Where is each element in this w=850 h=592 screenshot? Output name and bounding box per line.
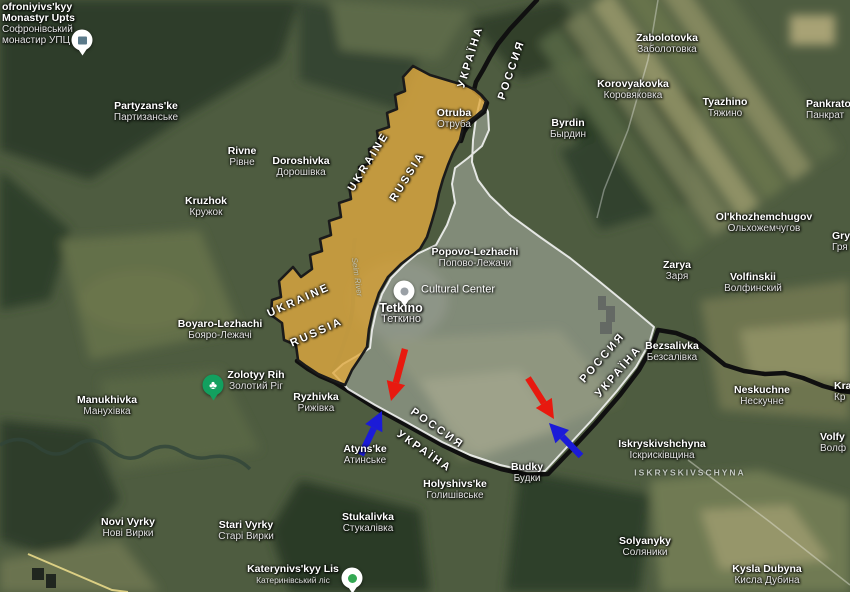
monastery-marker[interactable] (72, 30, 93, 51)
label-katerynivskyy-lis[interactable]: Katerynivs'kyy LisКатеринівський ліс (247, 564, 339, 586)
label-zolotyy-rih-text: Золотий Ріг (227, 381, 284, 392)
label-pankratovka-text: Панкрат (806, 110, 850, 121)
border-label-rossiya-top-text: РОССИЯ (497, 39, 528, 102)
label-ryzhivka[interactable]: RyzhivkaРижівка (293, 392, 339, 414)
label-atynske[interactable]: Atyns'keАтинське (343, 444, 386, 466)
label-manukhivka[interactable]: ManukhivkaМанухівка (77, 395, 137, 417)
label-kysla-dubyna[interactable]: Kysla DubynaКисла Дубина (732, 564, 801, 586)
label-sofroniyivskyy-monastyr-text: ofroniyivs'kyy (2, 2, 75, 13)
border-label-russia-upper: RUSSIA (388, 150, 427, 204)
label-solyanyky[interactable]: SolyanykyСоляники (619, 536, 671, 558)
label-cultural-center[interactable]: Cultural Center (421, 285, 495, 296)
label-otruba-text: Отруба (437, 119, 471, 130)
label-zolotyy-rih[interactable]: Zolotyy RihЗолотий Ріг (227, 370, 284, 392)
label-neskuchne-text: Нескучне (734, 396, 790, 407)
border-label-russia-upper-text: RUSSIA (388, 150, 427, 204)
label-rivne-text: Рівне (228, 157, 257, 168)
label-zarya-text: Zarya (663, 260, 691, 271)
label-gryaznoe-text: Гря (832, 242, 850, 253)
label-stukalivka-text: Стукалівка (342, 523, 394, 534)
label-olkhozhemchugov[interactable]: Ol'khozhemchugovОльхожемчугов (716, 212, 812, 234)
label-doroshivka[interactable]: DoroshivkaДорошівка (272, 156, 329, 178)
label-seim-river: Seim River (349, 257, 365, 297)
label-atynske-text: Atyns'ke (343, 444, 386, 455)
label-stari-vyrky-text: Старі Вирки (218, 531, 274, 542)
zolotyy-rih-marker[interactable]: ♣ (203, 375, 224, 396)
border-label-rossiya-right: РОССИЯ (578, 331, 627, 385)
border-label-russia-lower-text: RUSSIA (289, 316, 345, 349)
label-kysla-dubyna-text: Кисла Дубина (732, 575, 801, 586)
label-atynske-text: Атинське (343, 455, 386, 466)
label-katerynivskyy-lis-text: Катеринівський ліс (247, 575, 339, 586)
label-sofroniyivskyy-monastyr-text: Софронівський (2, 24, 75, 35)
border-label-rossiya-right-text: РОССИЯ (578, 331, 627, 385)
label-gryaznoe-text: Gry (832, 231, 850, 242)
border-label-ukraine-upper-text: UKRAINE (346, 130, 391, 193)
label-stari-vyrky-text: Stari Vyrky (218, 520, 274, 531)
label-krasn[interactable]: KraКр (834, 381, 850, 403)
label-sofroniyivskyy-monastyr-text: монастир УПЦ (2, 35, 75, 46)
label-tetkino-text: Теткино (379, 314, 423, 325)
label-byrdin-text: Byrdin (550, 118, 586, 129)
label-iskryskivschyna-area: ISKRYSKIVSCHYNA (634, 468, 745, 479)
label-novi-vyrky[interactable]: Novi VyrkyНові Вирки (101, 517, 155, 539)
katerynivskyy-lis-marker[interactable] (342, 568, 363, 589)
label-rivne-text: Rivne (228, 146, 257, 157)
label-manukhivka-text: Manukhivka (77, 395, 137, 406)
label-olkhozhemchugov-text: Ol'khozhemchugov (716, 212, 812, 223)
label-holyshivske-text: Holyshivs'ke (423, 479, 487, 490)
label-zarya[interactable]: ZaryaЗаря (663, 260, 691, 282)
label-tyazhino-text: Tyazhino (703, 97, 748, 108)
label-bezsalivka[interactable]: BezsalivkaБезсалівка (645, 341, 699, 363)
label-pankratovka[interactable]: PankratoПанкрат (806, 99, 850, 121)
label-ryzhivka-text: Рижівка (293, 403, 339, 414)
border-label-ukraine-upper: UKRAINE (346, 130, 391, 193)
label-gryaznoe[interactable]: GryГря (832, 231, 850, 253)
border-label-rossiya-mid-text: РОССИЯ (408, 407, 465, 452)
label-boyaro-lezhachi-text: Бояро-Лежачі (178, 330, 263, 341)
border-label-ukraine-lower-text: UKRAINE (266, 282, 332, 320)
label-budky-text: Budky (511, 462, 543, 473)
label-otruba-text: Otruba (437, 108, 471, 119)
label-partyzanske-text: Партизанське (114, 112, 178, 123)
border-label-rossiya-mid: РОССИЯ (408, 407, 465, 452)
label-kruzhok-text: Кружок (185, 207, 227, 218)
label-zabolotovka-text: Заболотовка (636, 44, 698, 55)
label-kruzhok[interactable]: KruzhokКружок (185, 196, 227, 218)
label-pankratovka-text: Pankrato (806, 99, 850, 110)
satellite-map[interactable]: ofroniyivs'kyyMonastyr UptsСофронівський… (0, 0, 850, 592)
label-partyzanske-text: Partyzans'ke (114, 101, 178, 112)
label-cultural-center-text: Cultural Center (421, 285, 495, 296)
label-sofroniyivskyy-monastyr[interactable]: ofroniyivs'kyyMonastyr UptsСофронівський… (2, 2, 75, 46)
label-zabolotovka-text: Zabolotovka (636, 33, 698, 44)
label-iskryskivshchyna-text: Iskryskivshchyna (618, 439, 706, 450)
border-label-ukraina-top-text: УКРАЇНА (456, 25, 485, 90)
label-budky[interactable]: BudkyБудки (511, 462, 543, 484)
label-doroshivka-text: Дорошівка (272, 167, 329, 178)
label-novi-vyrky-text: Нові Вирки (101, 528, 155, 539)
label-popovo-lezhachi-text: Попово-Лежачи (432, 258, 519, 269)
label-tyazhino[interactable]: TyazhinoТяжино (703, 97, 748, 119)
label-stukalivka-text: Stukalivka (342, 512, 394, 523)
label-solyanyky-text: Solyanyky (619, 536, 671, 547)
label-tyazhino-text: Тяжино (703, 108, 748, 119)
label-zabolotovka[interactable]: ZabolotovkaЗаболотовка (636, 33, 698, 55)
border-label-ukraina-right-text: УКРАЇНА (594, 344, 644, 400)
border-label-ukraina-mid-text: УКРАЇНА (395, 429, 454, 475)
label-volfyne-text: Volfy (820, 432, 846, 443)
label-doroshivka-text: Doroshivka (272, 156, 329, 167)
label-korovyakovka-text: Korovyakovka (597, 79, 669, 90)
label-byrdin[interactable]: ByrdinБырдин (550, 118, 586, 140)
tree-dot-icon (348, 574, 357, 583)
label-katerynivskyy-lis-text: Katerynivs'kyy Lis (247, 564, 339, 575)
border-label-russia-lower: RUSSIA (289, 316, 345, 349)
border-label-ukraine-lower: UKRAINE (266, 282, 332, 320)
label-seim-river-text: Seim River (349, 257, 365, 297)
label-sofroniyivskyy-monastyr-text: Monastyr Upts (2, 13, 75, 24)
label-zarya-text: Заря (663, 271, 691, 282)
border-label-ukraina-top: УКРАЇНА (456, 25, 485, 90)
cultural-center-marker[interactable] (394, 281, 415, 302)
monastery-building-icon (78, 36, 87, 44)
label-iskryskivschyna-area-text: ISKRYSKIVSCHYNA (634, 468, 745, 479)
tree-icon: ♣ (209, 379, 217, 391)
label-holyshivske[interactable]: Holyshivs'keГолишівське (423, 479, 487, 501)
label-volfyne[interactable]: VolfyВолф (820, 432, 846, 454)
label-neskuchne-text: Neskuchne (734, 385, 790, 396)
label-olkhozhemchugov-text: Ольхожемчугов (716, 223, 812, 234)
label-boyaro-lezhachi[interactable]: Boyaro-LezhachiБояро-Лежачі (178, 319, 263, 341)
label-stukalivka[interactable]: StukalivkaСтукалівка (342, 512, 394, 534)
label-korovyakovka[interactable]: KorovyakovkaКоровяковка (597, 79, 669, 101)
label-bezsalivka-text: Bezsalivka (645, 341, 699, 352)
label-krasn-text: Kra (834, 381, 850, 392)
label-holyshivske-text: Голишівське (423, 490, 487, 501)
label-partyzanske[interactable]: Partyzans'keПартизанське (114, 101, 178, 123)
label-neskuchne[interactable]: NeskuchneНескучне (734, 385, 790, 407)
label-korovyakovka-text: Коровяковка (597, 90, 669, 101)
label-budky-text: Будки (511, 473, 543, 484)
label-volfinskii[interactable]: VolfinskiiВолфинский (724, 272, 782, 294)
label-otruba[interactable]: OtrubaОтруба (437, 108, 471, 130)
border-label-rossiya-top: РОССИЯ (497, 39, 528, 102)
label-volfinskii-text: Волфинский (724, 283, 782, 294)
poi-dot-icon (400, 287, 408, 295)
label-popovo-lezhachi-text: Popovo-Lezhachi (432, 247, 519, 258)
label-volfyne-text: Волф (820, 443, 846, 454)
label-novi-vyrky-text: Novi Vyrky (101, 517, 155, 528)
label-iskryskivshchyna[interactable]: IskryskivshchynaІскрисківщина (618, 439, 706, 461)
label-krasn-text: Кр (834, 392, 850, 403)
label-kysla-dubyna-text: Kysla Dubyna (732, 564, 801, 575)
label-volfinskii-text: Volfinskii (724, 272, 782, 283)
label-boyaro-lezhachi-text: Boyaro-Lezhachi (178, 319, 263, 330)
border-label-ukraina-mid: УКРАЇНА (395, 429, 454, 475)
label-stari-vyrky[interactable]: Stari VyrkyСтарі Вирки (218, 520, 274, 542)
label-rivne[interactable]: RivneРівне (228, 146, 257, 168)
label-solyanyky-text: Соляники (619, 547, 671, 558)
label-bezsalivka-text: Безсалівка (645, 352, 699, 363)
label-ryzhivka-text: Ryzhivka (293, 392, 339, 403)
label-kruzhok-text: Kruzhok (185, 196, 227, 207)
border-label-ukraina-right: УКРАЇНА (594, 344, 644, 400)
label-manukhivka-text: Манухівка (77, 406, 137, 417)
label-layer: ofroniyivs'kyyMonastyr UptsСофронівський… (0, 0, 850, 592)
label-byrdin-text: Бырдин (550, 129, 586, 140)
label-iskryskivshchyna-text: Іскрисківщина (618, 450, 706, 461)
label-zolotyy-rih-text: Zolotyy Rih (227, 370, 284, 381)
label-popovo-lezhachi[interactable]: Popovo-LezhachiПопово-Лежачи (432, 247, 519, 269)
